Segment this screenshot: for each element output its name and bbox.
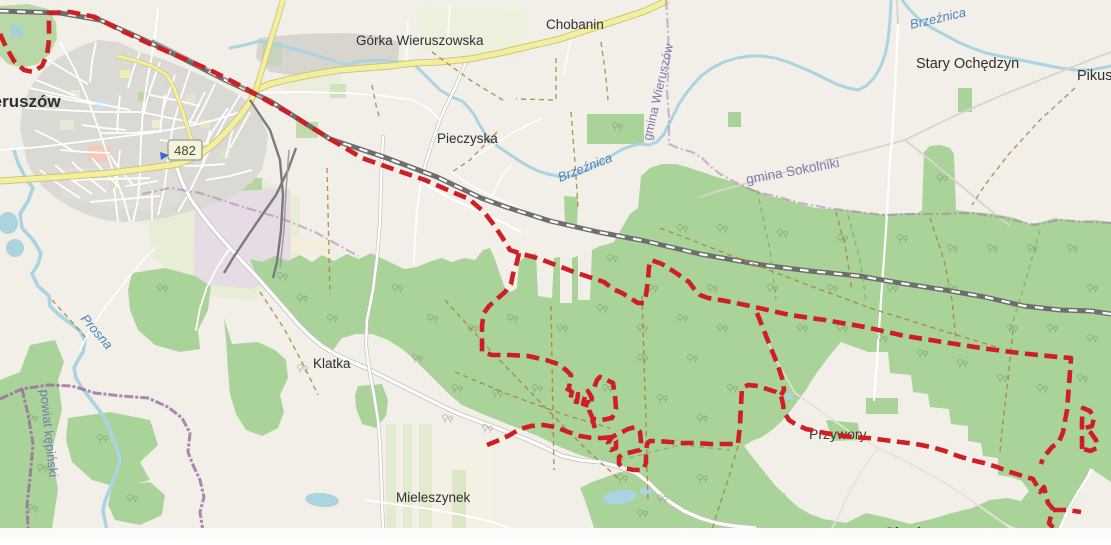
svg-text:Mieleszynek: Mieleszynek: [396, 490, 471, 505]
svg-text:Górka Wieruszowska: Górka Wieruszowska: [356, 33, 484, 48]
svg-text:482: 482: [174, 143, 196, 158]
svg-text:Stary Ochędzyn: Stary Ochędzyn: [916, 56, 1019, 72]
svg-text:Pikusy: Pikusy: [1077, 68, 1111, 84]
svg-text:Klatka: Klatka: [313, 356, 351, 371]
svg-text:Przywory: Przywory: [809, 426, 867, 442]
svg-text:Chobanin: Chobanin: [546, 17, 604, 32]
svg-text:Pieczyska: Pieczyska: [437, 131, 498, 146]
svg-text:Wieruszów: Wieruszów: [0, 92, 61, 111]
